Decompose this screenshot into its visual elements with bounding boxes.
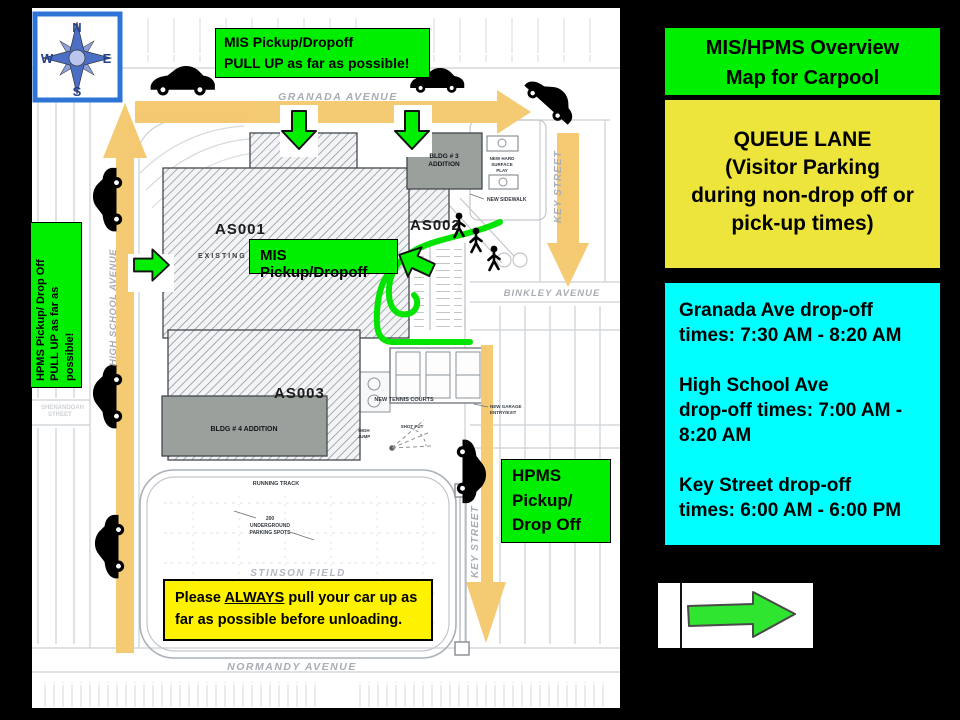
hpms-pickup-side-callout: HPMS Pickup/ Drop Off PULL UP as far as … [30,222,82,388]
bldg4-label: BLDG # 4 ADDITION [210,426,277,433]
high-jump-label1: HIGH [358,428,369,433]
shenandoah-street-label: SHENANDOAH [41,405,84,411]
new-sidewalk-label: NEW SIDEWALK [487,197,527,203]
pull-up-notice: Please ALWAYS pull your car up as far as… [163,579,433,641]
compass-n: N [72,20,81,35]
bldg3-label-line1: BLDG # 3 [429,153,459,160]
garage-label1: NEW GARAGE [490,404,522,409]
stinson-field-label: STINSON FIELD [250,568,346,579]
key-street-upper-label: KEY STREET [553,150,564,223]
existing-label: EXISTING [198,253,247,260]
garage-label2: ENTRY/EXIT [490,410,517,415]
mis-pickup-top-callout: MIS Pickup/Dropoff PULL UP as far as pos… [215,28,430,78]
hard-surface-label2: SURFACE [491,162,513,167]
hpms-pickup-right-callout: HPMS Pickup/ Drop Off [501,459,611,543]
hard-surface-label3: PLAY [496,168,508,173]
shot-put-label: SHOT PUT [401,424,424,429]
as002-label: AS002 [410,217,461,234]
compass-e: E [103,51,112,66]
mis-pickup-mid-callout: MIS Pickup/Dropoff [249,239,398,274]
compass-w: W [41,51,54,66]
slide-title: MIS/HPMS Overview Map for Carpool [665,28,940,95]
dropoff-times-box: Granada Ave drop-off times: 7:30 AM - 8:… [665,283,940,545]
buildings [162,133,482,460]
running-track-label: RUNNING TRACK [253,481,299,487]
binkley-ave-label: BINKLEY AVENUE [504,288,601,299]
key-street-times: Key Street drop-off times: 6:00 AM - 6:0… [679,473,926,523]
high-school-ave-label: HIGH SCHOOL AVENUE [108,249,119,366]
key-street-lower-label: KEY STREET [470,505,481,578]
as003-label: AS003 [274,385,325,402]
normandy-ave-label: NORMANDY AVENUE [227,661,357,673]
granada-times: Granada Ave drop-off times: 7:30 AM - 8:… [679,298,926,348]
underground-label3: PARKING SPOTS [249,530,291,536]
compass-s: S [73,84,82,99]
bldg3-label-line2: ADDITION [428,161,460,168]
granada-ave-label: GRANADA AVENUE [278,91,398,103]
underground-label2: UNDERGROUND [250,523,290,529]
shenandoah-street-label2: STREET [48,412,72,418]
as001-label: AS001 [215,221,266,238]
high-jump-label2: JUMP [358,434,371,439]
compass-rose: N W E S [35,14,120,100]
hard-surface-label1: NEW HARD [490,156,515,161]
queue-lane-legend-box: QUEUE LANE (Visitor Parking during non-d… [665,100,940,268]
high-school-times: High School Ave drop-off times: 7:00 AM … [679,373,926,448]
underground-label1: 200 [266,516,275,522]
slide-canvas: { "colors": { "green": "#00EF00", "yello… [0,0,960,720]
car-icon [151,66,215,96]
legend-divider [680,583,682,648]
notice-text-prefix: Please [175,590,224,606]
notice-text-underlined: ALWAYS [224,590,284,606]
queue-lane-arrow-legend [658,583,813,648]
tennis-courts-label: NEW TENNIS COURTS [374,397,434,403]
